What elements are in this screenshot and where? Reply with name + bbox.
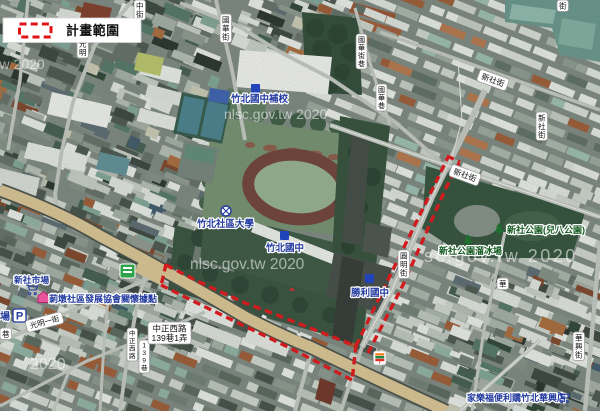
svg-text:國華街: 國華街 [222, 16, 230, 42]
svg-text:中正西路: 中正西路 [152, 324, 187, 334]
svg-text:新社公園(兒八公園): 新社公園(兒八公園) [507, 224, 585, 235]
svg-text:國華巷: 國華巷 [378, 86, 385, 110]
svg-text:圓明街: 圓明街 [400, 252, 408, 278]
svg-text:莿墩社區發展協會關懷據點: 莿墩社區發展協會關懷據點 [49, 293, 157, 304]
svg-text:139巷1弄: 139巷1弄 [152, 333, 188, 343]
svg-text:新社市場: 新社市場 [14, 274, 49, 285]
svg-text:2020: 2020 [30, 356, 66, 373]
svg-text:新社街: 新社街 [538, 113, 546, 140]
svg-text:竹北社區大學: 竹北社區大學 [196, 218, 255, 230]
svg-text:7: 7 [378, 360, 381, 366]
svg-text:竹北國中: 竹北國中 [265, 242, 304, 254]
svg-text:中街: 中街 [136, 1, 144, 20]
svg-text:中正西路: 中正西路 [129, 329, 136, 361]
svg-text:家樂福便利購竹北華興店: 家樂福便利購竹北華興店 [467, 392, 566, 403]
svg-text:竹北國中補校: 竹北國中補校 [230, 93, 289, 105]
svg-text:nlsc.gov.tw 2020: nlsc.gov.tw 2020 [224, 106, 327, 122]
svg-text:nlsc.gov.tw 2020: nlsc.gov.tw 2020 [190, 256, 305, 273]
svg-text:勝利國中: 勝利國中 [351, 287, 389, 299]
svg-text:華: 華 [499, 279, 507, 289]
svg-text:計畫範圍: 計畫範圍 [66, 23, 120, 38]
svg-text:華興街: 華興街 [575, 333, 583, 360]
svg-text:街: 街 [559, 1, 567, 11]
svg-text:場: 場 [0, 310, 10, 323]
svg-text:P: P [16, 311, 23, 323]
svg-text:新社公園溜冰場: 新社公園溜冰場 [439, 245, 502, 256]
svg-text:巷: 巷 [2, 330, 10, 339]
svg-text:ov.tw 2020: ov.tw 2020 [0, 56, 45, 72]
